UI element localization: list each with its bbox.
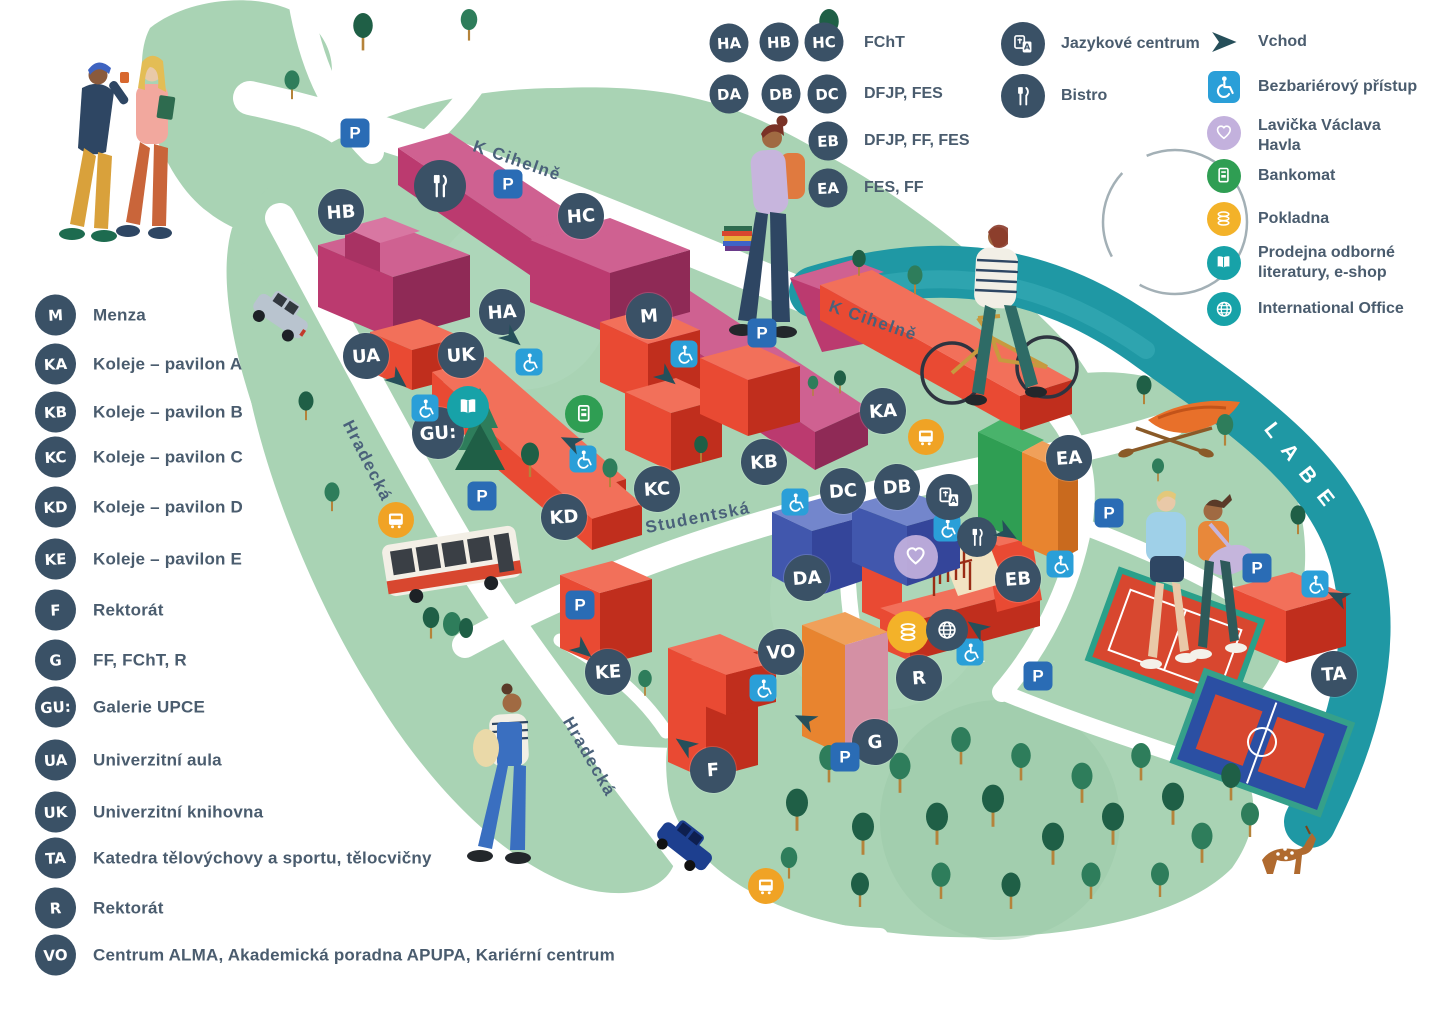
legend-badge: KC	[34, 435, 77, 478]
wheelchair-access-icon	[412, 395, 439, 422]
entrance-arrow-icon	[654, 364, 681, 391]
legend-label: Koleje – pavilon A	[93, 354, 242, 374]
legend-label: Univerzitní aula	[93, 750, 222, 770]
park-areas	[142, 0, 1305, 940]
bus-stop-icon	[748, 868, 784, 904]
legend-label: Koleje – pavilon D	[93, 497, 243, 517]
parking-sign: P	[748, 319, 777, 348]
wheelchair-access-icon	[516, 349, 543, 376]
legend-item-koleje-b: KBKoleje – pavilon B	[35, 392, 243, 433]
legend-item-koleje-c: KCKoleje – pavilon C	[35, 437, 243, 478]
legend-badge: F	[34, 588, 77, 631]
legend-badge: GU:	[34, 685, 77, 728]
legend-badge: KD	[34, 485, 77, 528]
bus-stop-icon	[908, 419, 944, 455]
legend-badge: M	[34, 293, 77, 336]
parking-sign: P	[1095, 499, 1124, 528]
wheelchair-access-icon	[782, 489, 809, 516]
faculty-label-fcht: FChT	[864, 34, 905, 52]
bistro-icon	[1001, 74, 1045, 118]
legend-item-rektorat-r: RRektorát	[35, 888, 164, 929]
legend-badge: TA	[34, 836, 77, 879]
legend-item-knihovna: UKUniverzitní knihovna	[35, 792, 263, 833]
legend-badge: KA	[34, 342, 77, 385]
legend-badge: R	[34, 886, 77, 929]
faculty-label-dfjp-ff-fes: DFJP, FF, FES	[864, 132, 970, 150]
symbol-label-prodejna: Prodejna odborné literatury, e-shop	[1258, 243, 1428, 283]
faculty-label-fes-ff: FES, FF	[864, 179, 924, 197]
heart-bench-icon	[894, 535, 938, 579]
legend-item-aula: UAUniverzitní aula	[35, 740, 222, 781]
language-centre-icon	[926, 474, 972, 520]
symbol-label-lavicka: Lavička Václava Havla	[1258, 116, 1388, 156]
parking-sign: P	[831, 743, 860, 772]
atm-icon	[1207, 159, 1241, 193]
campus-map-poster: A	[0, 0, 1440, 1018]
service-label-jazykove-centrum: Jazykové centrum	[1061, 35, 1200, 53]
legend-badge: G	[34, 638, 77, 681]
wheelchair-icon	[1208, 71, 1240, 103]
faculty-label-dfjp-fes: DFJP, FES	[864, 85, 943, 103]
language-centre-icon	[1001, 22, 1045, 66]
legend-label: Koleje – pavilon C	[93, 447, 243, 467]
legend-badge: UA	[34, 738, 77, 781]
legend-label: Koleje – pavilon B	[93, 402, 243, 422]
entrance-arrow-icon	[672, 732, 699, 759]
legend-item-g: GFF, FChT, R	[35, 640, 187, 681]
symbol-label-pokladna: Pokladna	[1258, 209, 1329, 229]
parking-sign: P	[468, 482, 497, 511]
wheelchair-access-icon	[750, 675, 777, 702]
parking-sign: P	[566, 591, 595, 620]
parking-sign: P	[1243, 554, 1272, 583]
bistro-icon	[414, 160, 466, 212]
legend-item-koleje-e: KEKoleje – pavilon E	[35, 539, 242, 580]
cash-icon	[887, 611, 929, 653]
legend-label: FF, FChT, R	[93, 650, 187, 670]
entrance-arrow-icon	[385, 367, 412, 394]
wheelchair-access-icon	[1047, 551, 1074, 578]
legend-item-galerie: GU:Galerie UPCE	[35, 687, 205, 728]
legend-badge: KB	[34, 390, 77, 433]
heart-bench-icon	[1207, 116, 1241, 150]
entrance-arrow-icon	[964, 615, 991, 642]
legend-item-rektorat-f: FRektorát	[35, 590, 164, 631]
parking-sign: P	[1024, 662, 1053, 691]
legend-item-vo: VOCentrum ALMA, Akademická poradna APUPA…	[35, 935, 615, 976]
bookshop-icon	[447, 386, 489, 428]
legend-label: Rektorát	[93, 898, 164, 918]
symbol-label-bezbarierovy: Bezbariérový přístup	[1258, 77, 1417, 97]
legend-label: Menza	[93, 305, 146, 325]
legend-label: Galerie UPCE	[93, 697, 205, 717]
legend-item-koleje-d: KDKoleje – pavilon D	[35, 487, 243, 528]
parking-sign: P	[341, 119, 370, 148]
legend-label: Centrum ALMA, Akademická poradna APUPA, …	[93, 945, 615, 965]
legend-label: Koleje – pavilon E	[93, 549, 242, 569]
bus-stop-icon	[378, 502, 414, 538]
entrance-arrow-icon	[1325, 584, 1352, 611]
entrance-arrow-icon	[570, 637, 597, 664]
entrance-arrow-icon	[994, 520, 1021, 547]
legend-item-koleje-a: KAKoleje – pavilon A	[35, 344, 242, 385]
bookshop-icon	[1207, 246, 1241, 280]
parking-sign: P	[494, 170, 523, 199]
symbol-label-bankomat: Bankomat	[1258, 166, 1335, 186]
entrance-arrow-icon	[1209, 27, 1239, 57]
legend-badge: UK	[34, 790, 77, 833]
legend-label: Rektorát	[93, 600, 164, 620]
legend-badge: VO	[34, 933, 77, 976]
globe-icon	[1207, 292, 1241, 326]
legend-badge: KE	[34, 537, 77, 580]
legend-item-menza: MMenza	[35, 295, 146, 336]
entrance-arrow-icon	[499, 325, 526, 352]
entrance-arrow-icon	[792, 707, 819, 734]
symbol-label-vchod: Vchod	[1258, 32, 1307, 52]
legend-item-ta: TAKatedra tělovýchovy a sportu, tělocvič…	[35, 838, 432, 879]
service-label-bistro: Bistro	[1061, 87, 1107, 105]
legend-label: Univerzitní knihovna	[93, 802, 263, 822]
cash-icon	[1207, 202, 1241, 236]
legend-label: Katedra tělovýchovy a sportu, tělocvičny	[93, 848, 432, 868]
symbol-label-international-office: International Office	[1258, 299, 1404, 319]
entrance-arrow-icon	[558, 429, 585, 456]
